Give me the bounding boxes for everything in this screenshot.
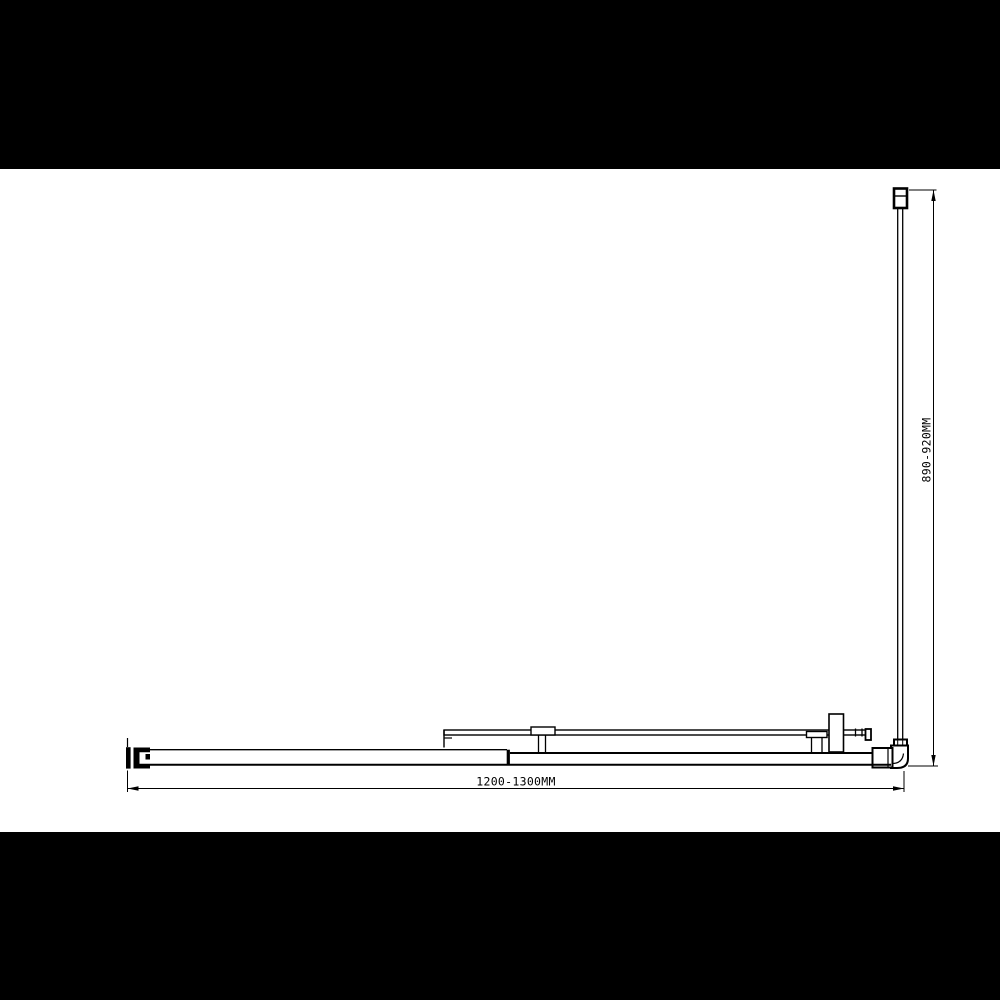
- screenshot-root: 890-920MM 1200-1300MM: [0, 0, 1000, 1000]
- rail-end-cap: [866, 729, 872, 740]
- top-support-rail: [444, 730, 866, 735]
- wall-profile-tab: [146, 754, 151, 760]
- shower-screen-plan-drawing: 890-920MM 1200-1300MM: [0, 0, 1000, 1000]
- corner-post: [891, 746, 908, 769]
- rail-clamp-right-plate: [807, 732, 828, 738]
- height-dim-label: 890-920MM: [920, 417, 934, 482]
- door-knob: [829, 714, 844, 752]
- letterbox-bottom: [0, 832, 1000, 1000]
- wall-profile-left-bar: [126, 747, 131, 768]
- width-dim-label: 1200-1300MM: [476, 775, 555, 789]
- rail-clamp-middle-plate: [531, 727, 555, 735]
- return-panel-top-bracket: [894, 189, 907, 209]
- letterbox-top: [0, 0, 1000, 169]
